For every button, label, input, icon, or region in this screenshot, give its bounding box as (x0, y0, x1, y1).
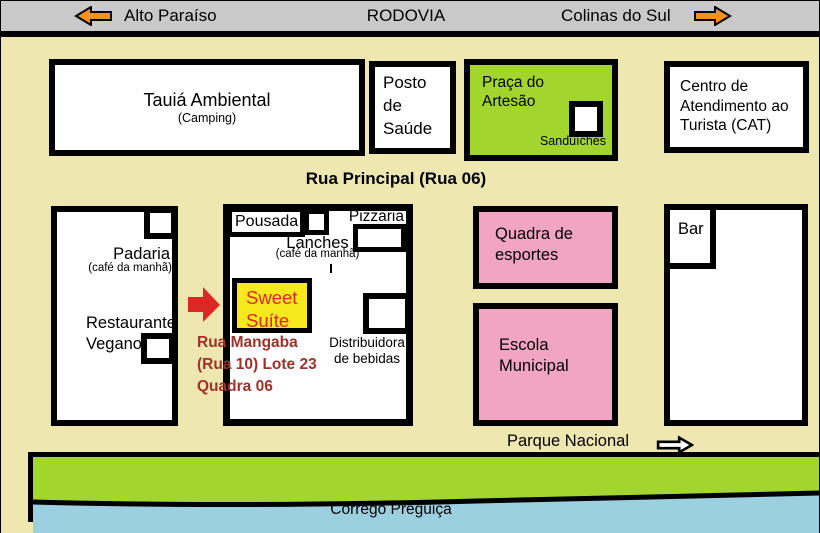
riverbank-graphic (28, 452, 820, 533)
school-label: Escola Municipal (499, 335, 597, 377)
bakery-label: Padaria (80, 244, 170, 264)
street-label-main: Rua Principal (Rua 06) (181, 169, 611, 189)
snack-bar-sublabel: (café da manhã) (250, 248, 385, 261)
sandwich-note: Sanduíches (540, 131, 606, 151)
park-label: Parque Nacional (507, 432, 629, 451)
room-square (141, 333, 175, 364)
address-label: Rua Mangaba (Rua 10) Lote 23 Quadra 06 (197, 332, 317, 398)
block-school: Escola Municipal (473, 303, 618, 426)
block-tourist-center: Centro de Atendimento ao Turista (CAT) (664, 61, 809, 153)
bar-room: Bar (664, 204, 716, 269)
health-post-label: Posto de Saúde (383, 71, 445, 140)
block-sports-court: Quadra de esportes (473, 206, 618, 289)
door-tick (330, 264, 332, 273)
arrow-left-icon (73, 6, 113, 26)
room-square (304, 209, 329, 235)
artisan-square-label: Praça do Artesão (482, 73, 574, 111)
arrow-right-icon (693, 6, 733, 26)
destination-left-label: Alto Paraíso (124, 6, 217, 26)
highway-bar: Alto Paraíso RODOVIA Colinas do Sul (1, 1, 820, 37)
river-label: Córrego Preguiça (286, 501, 496, 519)
sweet-suite-label: Sweet Suíte (246, 287, 297, 331)
map-canvas: Alto Paraíso RODOVIA Colinas do Sul Taui… (0, 0, 820, 533)
block-camping: Tauiá Ambiental (Camping) (49, 59, 365, 156)
room-square (363, 293, 411, 334)
block-artisan-square: Praça do Artesão Sanduíches (464, 59, 618, 161)
camping-label: Tauiá Ambiental (143, 90, 270, 111)
sports-court-label: Quadra de esportes (495, 224, 595, 266)
camping-sublabel: (Camping) (178, 111, 236, 125)
road-label: RODOVIA (331, 6, 481, 26)
bar-label: Bar (670, 210, 710, 239)
beverage-distributor-label: Distribuidora de bebidas (321, 335, 413, 367)
sweet-suite-box: Sweet Suíte (232, 278, 312, 333)
tourist-center-label: Centro de Atendimento ao Turista (CAT) (680, 77, 798, 136)
block-west: Padaria (café da manhã) Restaurante Vega… (51, 206, 178, 426)
bakery-sublabel: (café da manhã) (62, 262, 172, 275)
block-health-post: Posto de Saúde (369, 61, 456, 154)
room-square (144, 207, 177, 239)
destination-right-label: Colinas do Sul (561, 6, 671, 26)
block-bar: Bar (664, 204, 808, 426)
inn-label: Pousada (232, 212, 300, 231)
highlight-arrow-icon (188, 286, 221, 324)
